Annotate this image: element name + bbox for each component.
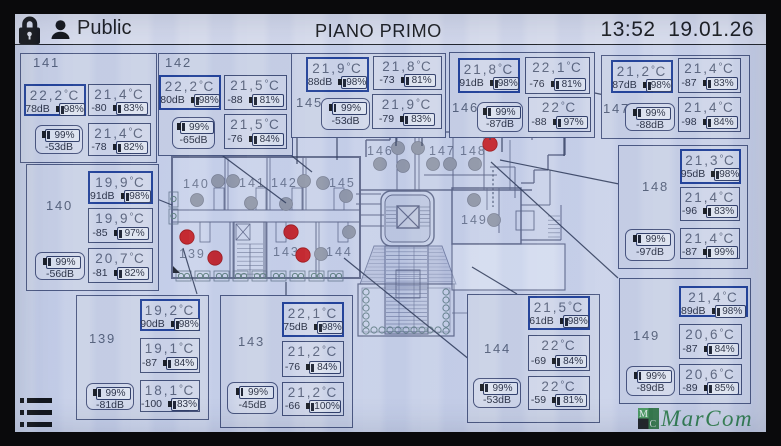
- svg-text:149: 149: [461, 213, 488, 227]
- svg-text:M: M: [639, 409, 648, 420]
- svg-text:147: 147: [429, 144, 456, 158]
- svg-text:C: C: [650, 419, 657, 429]
- svg-text:140: 140: [183, 177, 210, 191]
- svg-text:145: 145: [329, 176, 356, 190]
- svg-text:142: 142: [271, 176, 298, 190]
- svg-text:146: 146: [367, 144, 394, 158]
- svg-text:144: 144: [326, 245, 353, 259]
